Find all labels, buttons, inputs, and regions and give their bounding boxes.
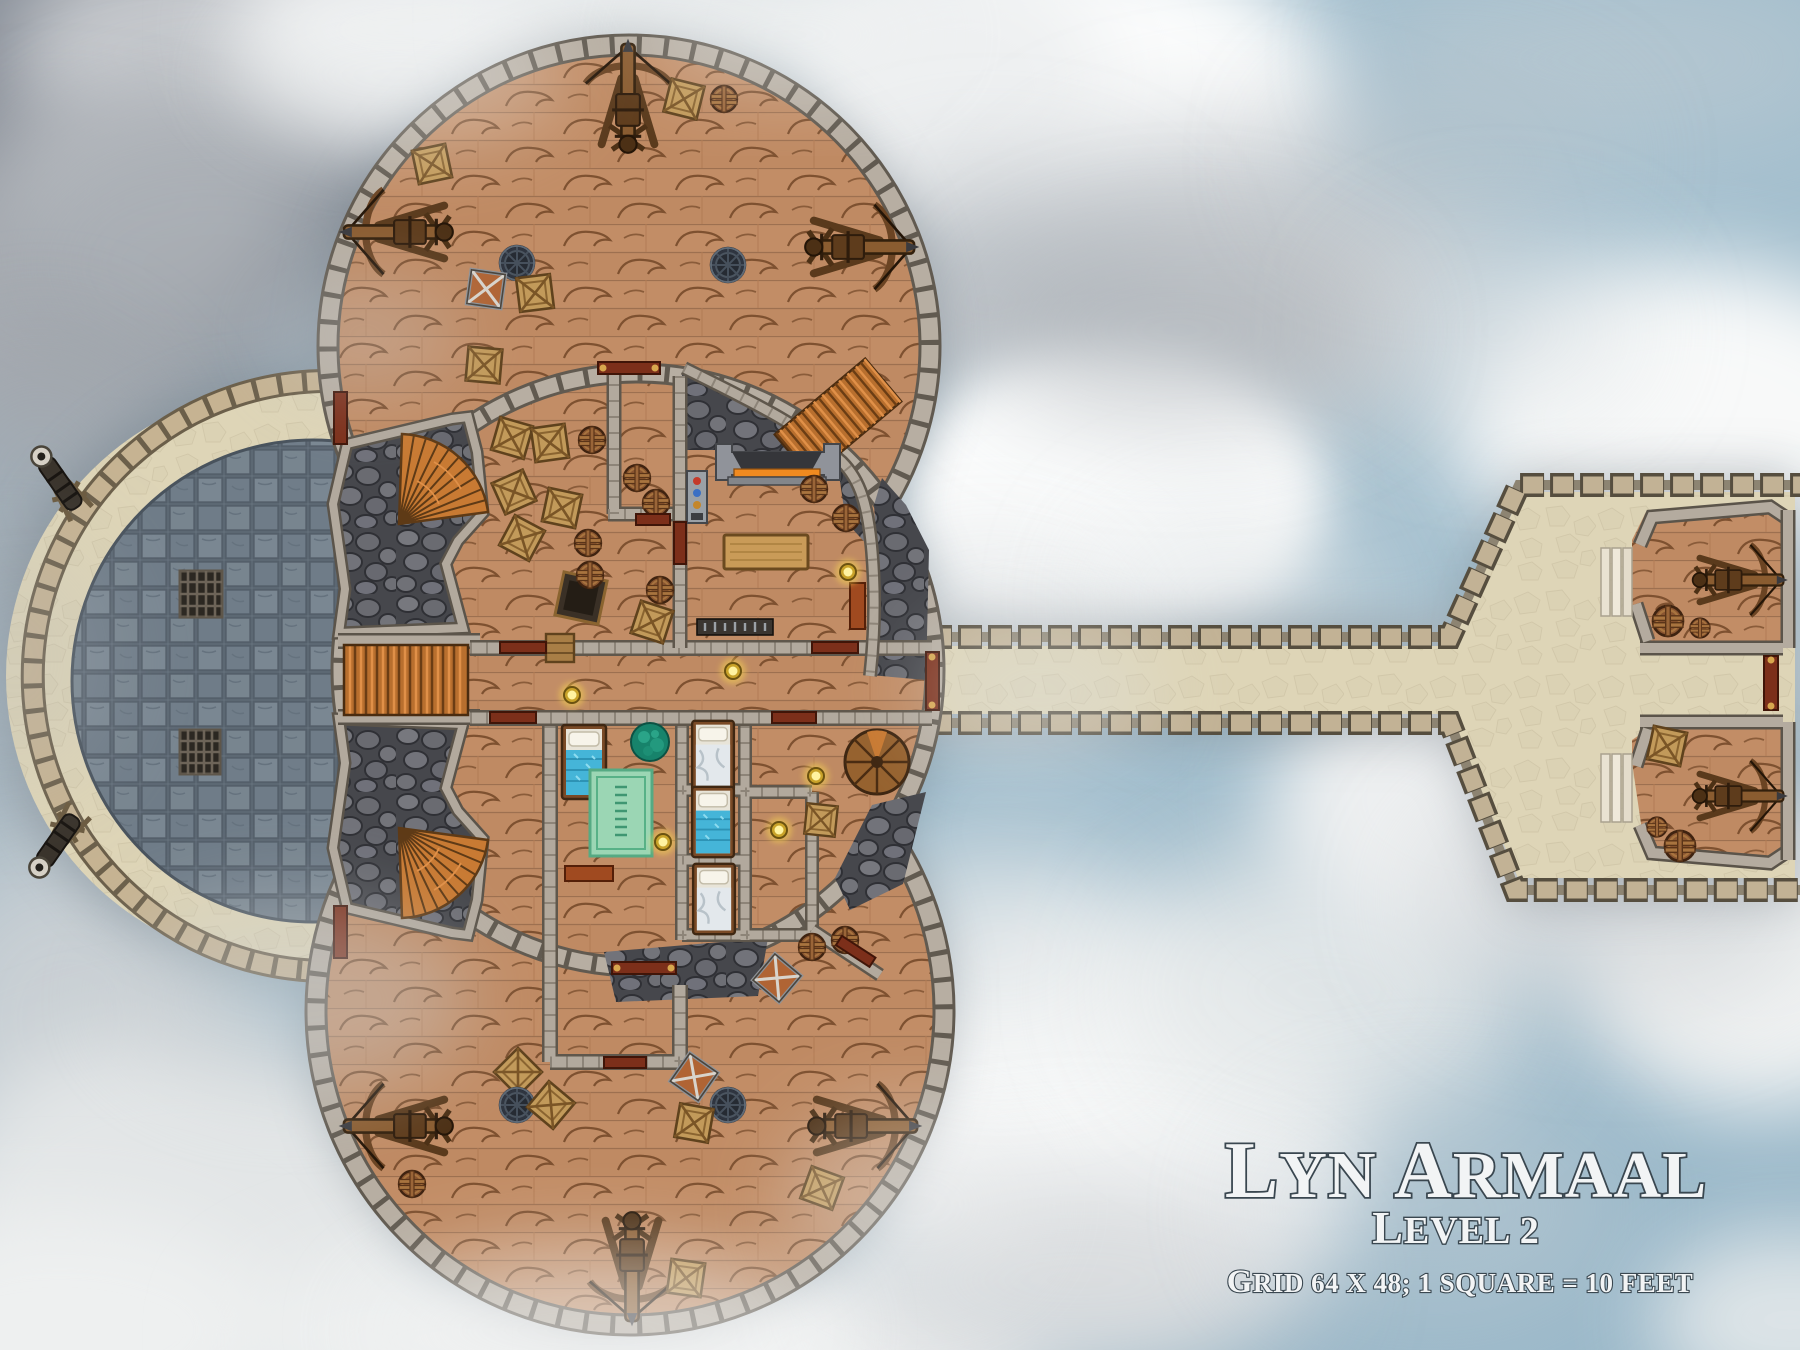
svg-text:LEVEL 2: LEVEL 2 bbox=[1372, 1202, 1540, 1253]
svg-text:GRID 64 X 48; 1 SQUARE = 10 FE: GRID 64 X 48; 1 SQUARE = 10 FEET bbox=[1227, 1264, 1694, 1300]
svg-text:LYN ARMAAL: LYN ARMAAL bbox=[1225, 1127, 1707, 1215]
